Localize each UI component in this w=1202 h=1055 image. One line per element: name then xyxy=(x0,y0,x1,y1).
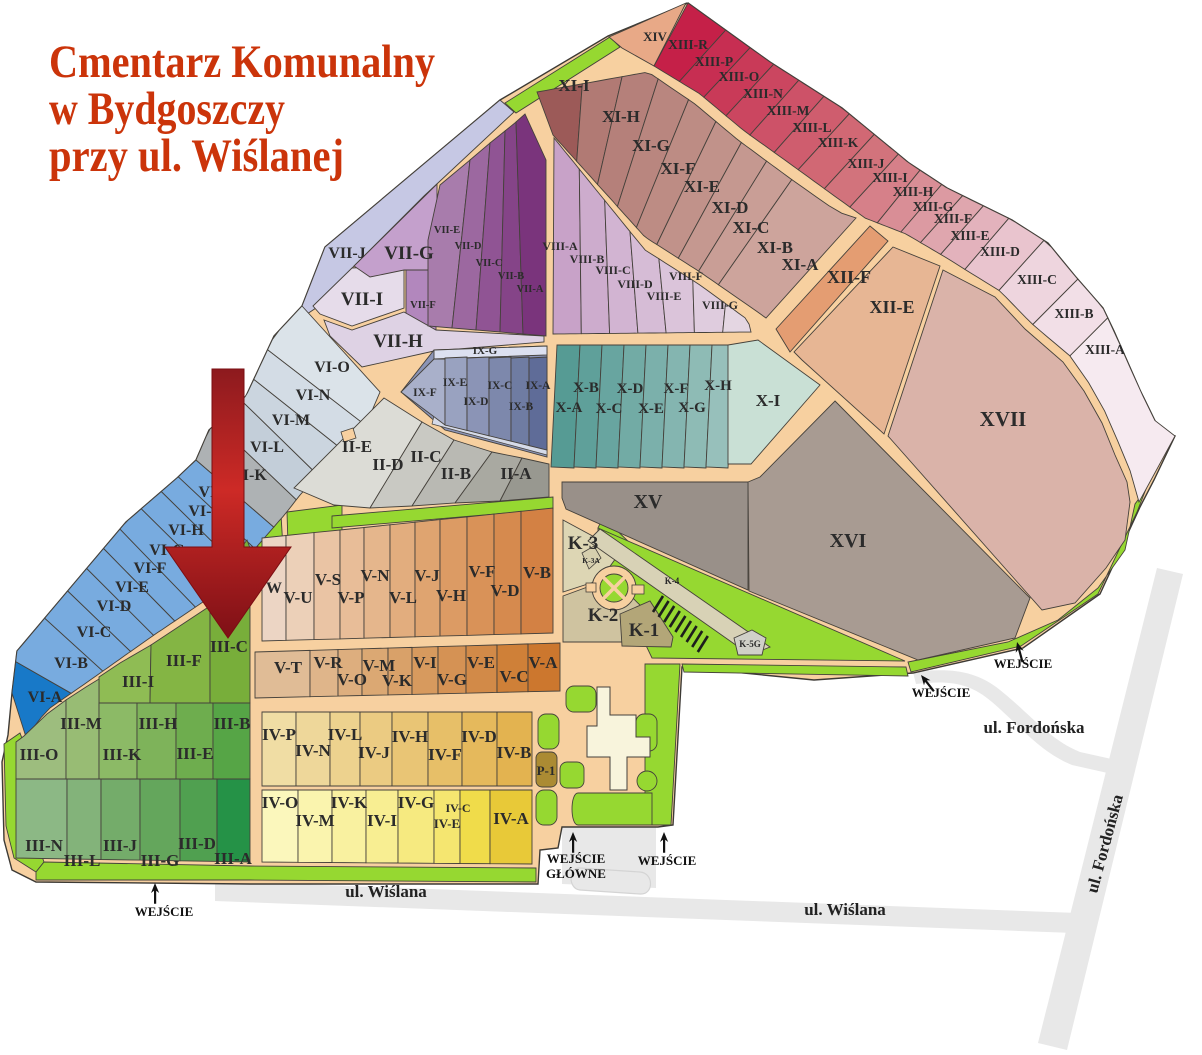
svg-text:VI-F: VI-F xyxy=(134,560,167,577)
svg-text:X-B: X-B xyxy=(573,380,599,396)
svg-text:III-B: III-B xyxy=(214,714,251,733)
svg-text:III-M: III-M xyxy=(60,714,102,733)
svg-text:VIII-G: VIII-G xyxy=(702,298,738,312)
svg-text:IX-D: IX-D xyxy=(464,396,489,408)
svg-text:K-3A: K-3A xyxy=(582,556,600,565)
svg-text:IV-P: IV-P xyxy=(262,725,296,744)
svg-text:ul. Wiślana: ul. Wiślana xyxy=(345,882,427,901)
svg-text:V-L: V-L xyxy=(389,588,417,607)
svg-text:XIII-B: XIII-B xyxy=(1054,306,1093,321)
svg-text:XI-I: XI-I xyxy=(558,76,590,95)
svg-text:IX-A: IX-A xyxy=(526,380,552,392)
svg-text:XII-F: XII-F xyxy=(827,267,871,287)
svg-text:V-B: V-B xyxy=(523,563,551,582)
svg-text:K-4: K-4 xyxy=(665,576,680,586)
svg-text:VII-C: VII-C xyxy=(476,258,503,269)
svg-text:V-T: V-T xyxy=(274,658,303,677)
svg-text:WEJŚCIE: WEJŚCIE xyxy=(994,656,1053,671)
svg-text:XIII-I: XIII-I xyxy=(872,170,907,185)
svg-text:X-E: X-E xyxy=(638,401,664,417)
svg-text:IX-C: IX-C xyxy=(488,380,513,392)
svg-text:X-F: X-F xyxy=(664,381,689,397)
svg-text:IV-J: IV-J xyxy=(358,743,390,762)
svg-text:IV-C: IV-C xyxy=(445,801,470,815)
svg-text:IV-A: IV-A xyxy=(493,809,529,828)
svg-text:V-C: V-C xyxy=(500,667,529,686)
svg-text:III-J: III-J xyxy=(103,836,138,855)
svg-text:V-U: V-U xyxy=(284,588,313,607)
svg-text:VII-B: VII-B xyxy=(498,271,524,282)
svg-text:X-G: X-G xyxy=(678,400,706,416)
svg-text:V-D: V-D xyxy=(491,581,520,600)
svg-text:V-F: V-F xyxy=(468,562,495,581)
svg-text:III-L: III-L xyxy=(64,851,101,870)
svg-text:XIII-A: XIII-A xyxy=(1085,342,1125,357)
svg-text:XIII-O: XIII-O xyxy=(719,69,760,84)
svg-text:XIII-K: XIII-K xyxy=(818,135,859,150)
svg-text:XI-F: XI-F xyxy=(661,159,696,178)
svg-text:III-C: III-C xyxy=(210,637,248,656)
svg-text:XIII-J: XIII-J xyxy=(848,156,885,171)
svg-text:V-I: V-I xyxy=(413,653,437,672)
svg-text:XI-G: XI-G xyxy=(632,136,670,155)
svg-text:V-K: V-K xyxy=(382,671,413,690)
svg-text:IV-B: IV-B xyxy=(497,743,532,762)
svg-text:IV-D: IV-D xyxy=(461,727,497,746)
svg-text:VIII-E: VIII-E xyxy=(647,289,682,303)
svg-text:III-F: III-F xyxy=(166,651,202,670)
svg-text:IX-G: IX-G xyxy=(473,345,498,357)
svg-text:VI-B: VI-B xyxy=(54,655,88,672)
svg-text:II-E: II-E xyxy=(342,437,372,456)
svg-text:IV-M: IV-M xyxy=(295,811,334,830)
svg-text:IV-I: IV-I xyxy=(367,811,397,830)
svg-text:XIII-N: XIII-N xyxy=(743,86,783,101)
svg-text:XIII-F: XIII-F xyxy=(934,211,972,226)
svg-text:W: W xyxy=(266,580,282,597)
svg-text:K-1: K-1 xyxy=(629,620,660,641)
svg-text:VII-D: VII-D xyxy=(455,241,482,252)
svg-text:XI-H: XI-H xyxy=(602,107,640,126)
svg-text:XIII-P: XIII-P xyxy=(695,54,733,69)
svg-text:VII-I: VII-I xyxy=(341,289,383,310)
svg-text:V-G: V-G xyxy=(437,670,467,689)
svg-text:IV-E: IV-E xyxy=(434,816,460,831)
svg-text:GŁÓWNE: GŁÓWNE xyxy=(546,866,606,881)
svg-text:III-D: III-D xyxy=(178,834,216,853)
svg-text:IX-E: IX-E xyxy=(443,377,468,389)
svg-text:V-E: V-E xyxy=(467,653,495,672)
svg-text:WEJŚCIE: WEJŚCIE xyxy=(135,904,194,919)
svg-text:V-A: V-A xyxy=(529,653,559,672)
svg-text:II-B: II-B xyxy=(441,464,471,483)
svg-text:VII-E: VII-E xyxy=(434,225,460,236)
svg-text:XVII: XVII xyxy=(980,407,1027,431)
svg-text:przy ul. Wiślanej: przy ul. Wiślanej xyxy=(49,130,344,182)
svg-text:Cmentarz Komunalny: Cmentarz Komunalny xyxy=(49,36,435,88)
svg-text:K-5G: K-5G xyxy=(739,639,761,649)
svg-text:X-I: X-I xyxy=(756,391,781,410)
svg-text:WEJŚCIE: WEJŚCIE xyxy=(638,853,697,868)
svg-text:XIV: XIV xyxy=(643,29,667,44)
svg-text:VI-O: VI-O xyxy=(314,359,350,376)
svg-text:P-1: P-1 xyxy=(537,763,556,778)
svg-text:V-N: V-N xyxy=(361,566,391,585)
svg-text:XIII-H: XIII-H xyxy=(893,184,934,199)
svg-text:VII-J: VII-J xyxy=(328,245,365,262)
svg-text:III-A: III-A xyxy=(214,849,253,868)
svg-text:V-P: V-P xyxy=(337,588,364,607)
svg-text:VII-F: VII-F xyxy=(410,300,436,311)
svg-text:VII-A: VII-A xyxy=(517,284,544,295)
svg-text:IV-H: IV-H xyxy=(392,727,429,746)
svg-text:WEJŚCIE: WEJŚCIE xyxy=(547,851,606,866)
svg-text:XV: XV xyxy=(634,491,663,513)
svg-text:XIII-L: XIII-L xyxy=(792,120,831,135)
svg-text:XIII-R: XIII-R xyxy=(668,37,708,52)
svg-text:III-K: III-K xyxy=(103,745,143,764)
svg-text:III-O: III-O xyxy=(20,745,59,764)
svg-text:WEJŚCIE: WEJŚCIE xyxy=(912,685,971,700)
svg-text:K-2: K-2 xyxy=(588,605,619,626)
svg-text:IV-K: IV-K xyxy=(331,793,368,812)
svg-text:IX-B: IX-B xyxy=(509,401,534,413)
svg-text:VI-A: VI-A xyxy=(28,689,63,706)
svg-text:VI-D: VI-D xyxy=(97,598,132,615)
svg-text:III-N: III-N xyxy=(25,836,64,855)
svg-text:VI-C: VI-C xyxy=(77,624,112,641)
svg-text:VIII-F: VIII-F xyxy=(669,269,703,283)
svg-text:III-E: III-E xyxy=(177,744,214,763)
svg-text:VII-G: VII-G xyxy=(384,243,434,264)
svg-text:X-H: X-H xyxy=(704,378,732,394)
svg-text:XI-E: XI-E xyxy=(684,177,720,196)
svg-text:VI-H: VI-H xyxy=(168,522,204,539)
svg-text:II-D: II-D xyxy=(372,455,403,474)
svg-text:X-A: X-A xyxy=(556,400,583,416)
svg-text:XI-A: XI-A xyxy=(782,255,820,274)
svg-text:VIII-C: VIII-C xyxy=(595,263,630,277)
svg-text:IV-O: IV-O xyxy=(262,793,299,812)
svg-text:ul. Fordońska: ul. Fordońska xyxy=(983,718,1085,737)
svg-text:VII-H: VII-H xyxy=(373,331,423,352)
svg-text:XIII-D: XIII-D xyxy=(980,244,1020,259)
svg-text:w Bydgoszczy: w Bydgoszczy xyxy=(49,83,285,135)
svg-text:K-3: K-3 xyxy=(568,533,599,554)
svg-text:III-I: III-I xyxy=(122,672,155,691)
svg-text:ul. Wiślana: ul. Wiślana xyxy=(804,900,886,919)
svg-text:II-C: II-C xyxy=(410,447,441,466)
svg-text:XI-C: XI-C xyxy=(733,218,770,237)
svg-text:III-H: III-H xyxy=(139,714,178,733)
svg-text:VI-L: VI-L xyxy=(250,439,284,456)
svg-text:IV-G: IV-G xyxy=(398,793,435,812)
svg-text:VI-E: VI-E xyxy=(115,579,149,596)
svg-text:X-D: X-D xyxy=(617,381,644,397)
svg-text:III-G: III-G xyxy=(141,851,180,870)
svg-text:XIII-E: XIII-E xyxy=(950,228,989,243)
svg-text:VIII-A: VIII-A xyxy=(542,239,578,253)
svg-text:VI-N: VI-N xyxy=(296,387,331,404)
svg-text:IX-F: IX-F xyxy=(413,387,437,399)
svg-text:XIII-C: XIII-C xyxy=(1017,272,1057,287)
svg-text:II-A: II-A xyxy=(500,464,532,483)
svg-text:V-J: V-J xyxy=(414,566,440,585)
svg-text:XVI: XVI xyxy=(830,530,867,552)
svg-text:IV-N: IV-N xyxy=(295,741,331,760)
svg-text:VI-M: VI-M xyxy=(272,412,310,429)
svg-text:V-H: V-H xyxy=(436,586,466,605)
svg-text:XI-D: XI-D xyxy=(712,198,749,217)
svg-text:IV-L: IV-L xyxy=(328,725,363,744)
svg-text:X-C: X-C xyxy=(596,401,623,417)
svg-text:IV-F: IV-F xyxy=(428,745,462,764)
svg-text:V-S: V-S xyxy=(315,570,341,589)
svg-text:XIII-M: XIII-M xyxy=(767,103,810,118)
svg-text:XII-E: XII-E xyxy=(869,297,914,317)
